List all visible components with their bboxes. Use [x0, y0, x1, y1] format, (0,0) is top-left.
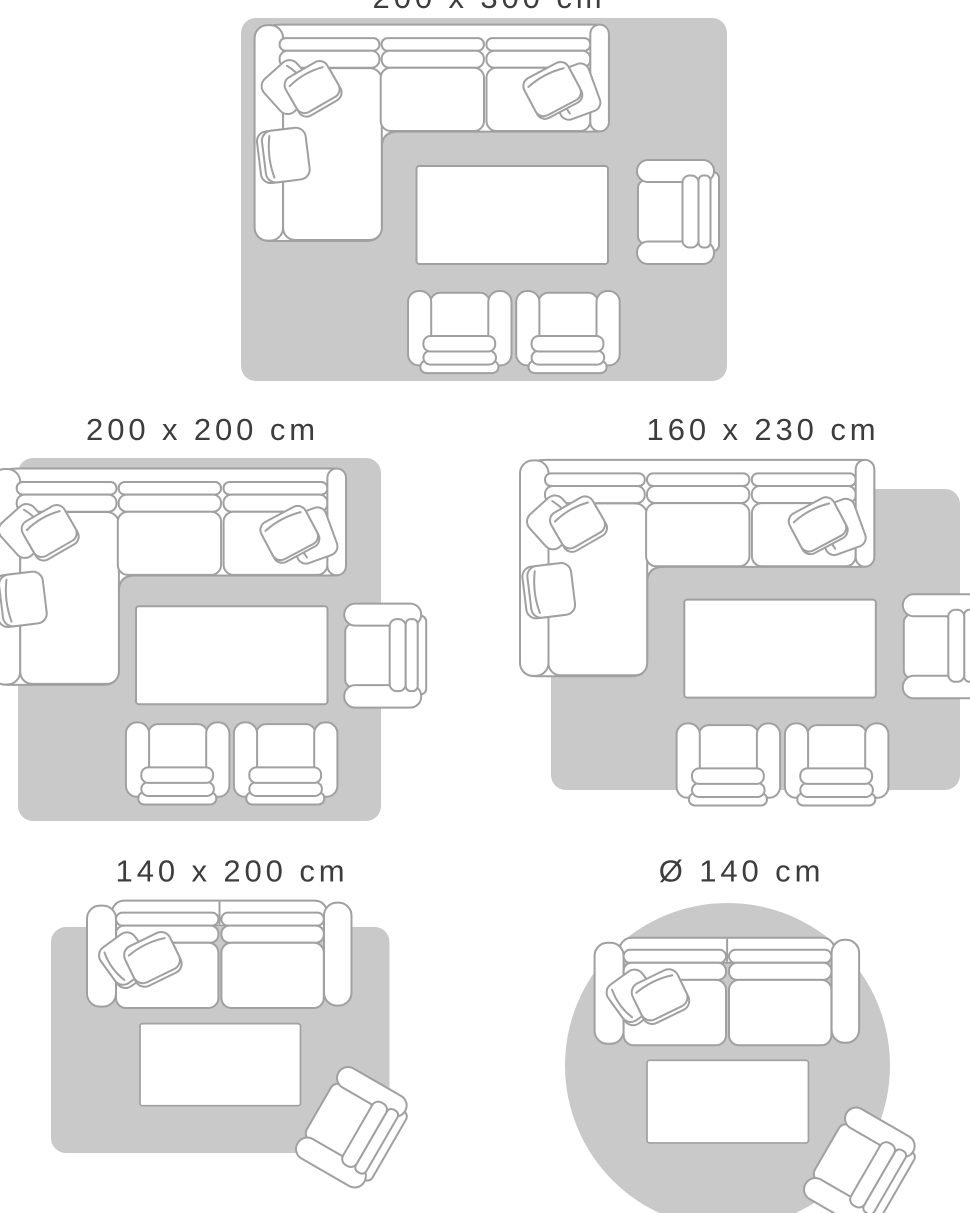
svg-text:Ø 140 cm: Ø 140 cm: [659, 854, 825, 889]
svg-text:200 x 300 cm: 200 x 300 cm: [373, 0, 606, 15]
svg-text:200 x 200 cm: 200 x 200 cm: [86, 412, 319, 447]
svg-text:160 x 230 cm: 160 x 230 cm: [647, 412, 880, 447]
svg-text:140 x 200 cm: 140 x 200 cm: [116, 854, 349, 889]
